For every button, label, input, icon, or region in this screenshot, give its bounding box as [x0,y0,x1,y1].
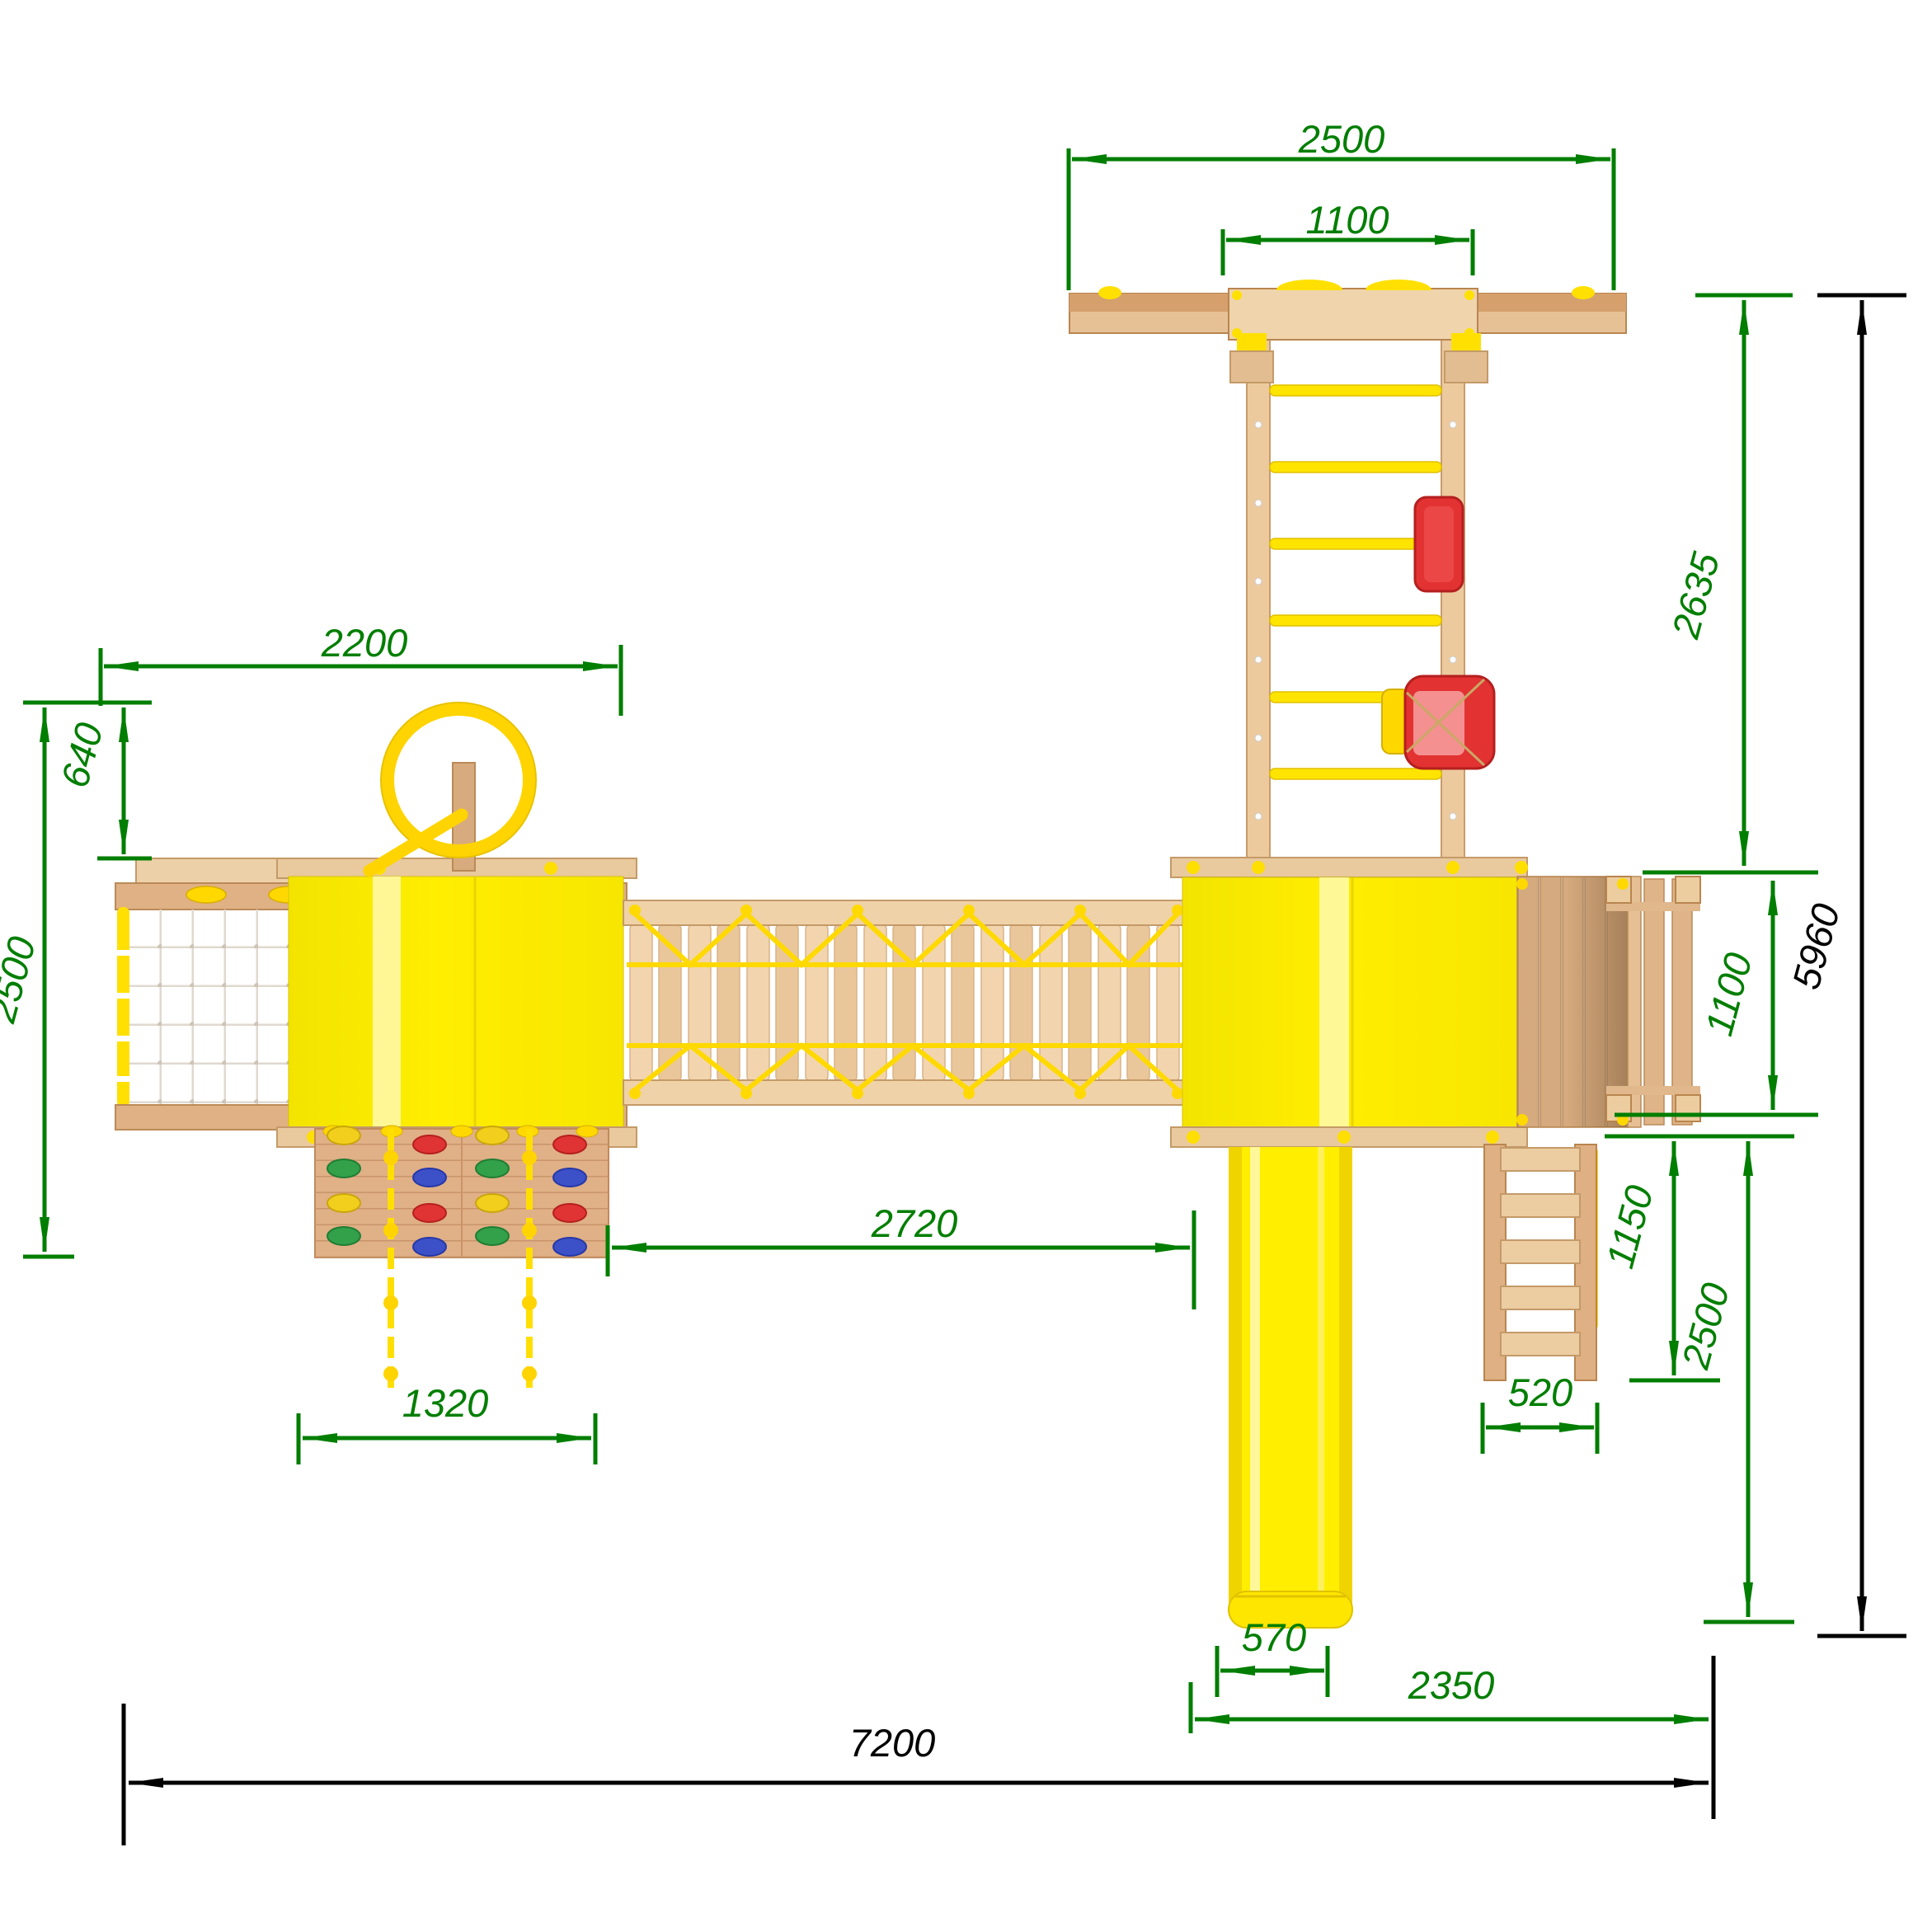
dim-label-1100-top: 1100 [1305,198,1389,242]
dim-overall-depth: 5960 [1784,295,1906,1636]
dim-label-640: 640 [52,718,110,792]
drawing-canvas: 2500 1100 2200 640 2500 2635 1100 5960 1… [0,0,1932,1932]
dim-label-2635: 2635 [1663,548,1728,644]
right-roof-highlight [1319,877,1349,1127]
dim-ring-offset: 640 [23,703,152,858]
dim-label-2500-top: 2500 [1298,117,1385,161]
swing-rail-left [1247,333,1270,877]
dim-left-module-depth: 2500 [0,707,74,1257]
dim-label-2720: 2720 [871,1201,958,1245]
right-tower-roof [1182,877,1517,1127]
slide-right-rail [1339,1147,1352,1605]
left-tower-roof [289,877,623,1127]
left-roof-highlight [373,877,401,1127]
swing-seat-baby [1382,676,1494,769]
dim-label-2500-right: 2500 [1673,1278,1738,1374]
dim-stairs-width: 520 [1483,1370,1597,1454]
swing-assembly [1069,280,1626,877]
slide-glare-1 [1250,1147,1260,1599]
rope-bridge [623,900,1184,1105]
climbing-wall [315,1126,609,1389]
right-tower [1171,858,1528,1147]
dim-swing-depth: 2635 [1643,295,1818,872]
dim-label-570: 570 [1242,1615,1306,1659]
dim-label-520: 520 [1508,1370,1572,1414]
stairs [1484,1145,1598,1380]
dim-label-1100-right: 1100 [1696,948,1760,1040]
dim-right-module-width: 2350 [1191,1663,1709,1733]
dim-climb-wall-width: 1320 [298,1381,595,1464]
dim-bridge-span: 2720 [608,1201,1194,1309]
slide-glare-2 [1318,1147,1324,1599]
balcony [1516,877,1700,1127]
slide [1229,1147,1352,1628]
playground-plan-svg: 2500 1100 2200 640 2500 2635 1100 5960 1… [0,0,1932,1932]
dim-label-5960: 5960 [1784,899,1848,994]
dim-label-2500-left: 2500 [0,932,44,1027]
dim-label-7200: 7200 [849,1721,936,1765]
swing-beam-plate [1229,289,1478,340]
dim-label-1150: 1150 [1597,1181,1661,1272]
swing-rail-right [1441,333,1464,877]
swing-seat-flat [1415,497,1463,591]
dim-swing-inner-width: 1100 [1223,198,1473,275]
dim-label-1320: 1320 [402,1381,489,1425]
climbing-net [129,910,291,1105]
stairs-steps [1501,1148,1580,1356]
bridge-bottom-rail [623,1080,1184,1105]
left-tower [277,703,637,1147]
slide-body [1229,1147,1352,1605]
balcony-bottom-bar [1606,1086,1700,1095]
right-tower-top-beam [1171,858,1527,877]
dim-label-2200: 2200 [321,621,408,665]
bridge-top-rail [623,900,1184,925]
slide-left-rail [1229,1147,1242,1605]
dim-label-2350: 2350 [1408,1663,1495,1707]
dim-left-module-width: 2200 [101,621,621,716]
